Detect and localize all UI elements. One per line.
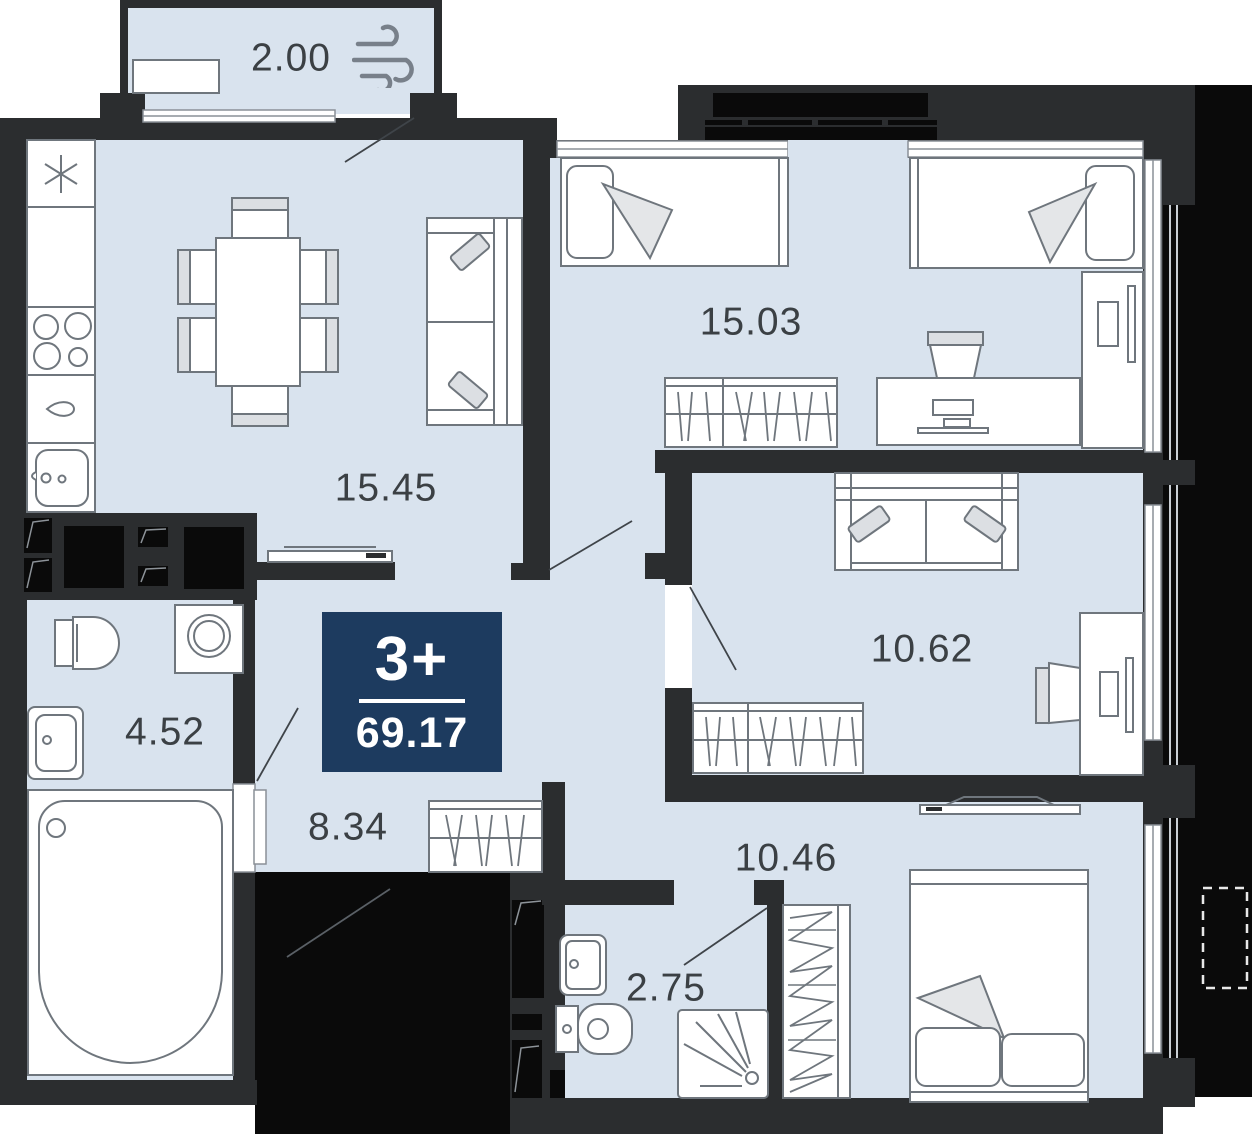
wardrobe-bedroom-middle: [693, 703, 863, 773]
sink-small: [560, 935, 606, 995]
bathroom-main-doorway: [233, 784, 255, 872]
sofa-living: [427, 218, 522, 425]
pillow: [1086, 166, 1134, 260]
bed-single-1: [561, 158, 788, 266]
shower: [678, 1010, 768, 1098]
apartment-badge: 3+ 69.17: [322, 612, 502, 772]
pillow: [567, 166, 613, 258]
room-label-balcony: 2.00: [251, 39, 331, 78]
badge-divider: [359, 699, 465, 703]
floor-plan-graphics: [0, 0, 1252, 1134]
wind-icon: [352, 24, 426, 88]
desk-item: [918, 428, 988, 433]
floor-plan: 2.00 15.45 15.03 10.62 4.52 8.34 10.46 2…: [0, 0, 1252, 1134]
dining-table: [216, 238, 300, 386]
kitchen-counter: [27, 140, 95, 512]
bathroom-main-door-leaf: [254, 790, 266, 864]
sofa-bedroom-middle: [835, 473, 1018, 570]
washing-machine: [175, 605, 243, 673]
room-label-kitchen-living: 15.45: [335, 469, 438, 508]
desk-item: [944, 419, 970, 427]
wardrobe-hallway: [429, 801, 542, 872]
kitchen-sink: [32, 450, 88, 506]
entrance-exterior-area: [255, 870, 510, 1134]
pillow: [916, 1028, 1000, 1086]
sink-main: [28, 707, 83, 779]
pc-tower: [1098, 302, 1118, 346]
room-label-bathroom-small: 2.75: [626, 969, 706, 1008]
balcony-cabinet: [133, 60, 219, 93]
monitor: [1126, 658, 1133, 732]
badge-room-count: 3+: [375, 629, 450, 691]
room-label-bedroom-top: 15.03: [700, 303, 803, 342]
room-label-bathroom-main: 4.52: [125, 713, 205, 752]
bed-single-2: [910, 158, 1143, 268]
room-label-bedroom-middle: 10.62: [871, 630, 974, 669]
pc-tower: [1100, 672, 1118, 716]
toilet-main: [55, 617, 119, 669]
room-label-bedroom-bottom: 10.46: [735, 839, 838, 878]
keyboard: [933, 400, 973, 415]
room-label-hallway: 8.34: [308, 808, 388, 847]
badge-total-area: 69.17: [356, 712, 469, 755]
closet-bedroom-bottom: [783, 905, 850, 1098]
bed-double: [910, 870, 1088, 1102]
monitor: [1128, 286, 1135, 362]
toilet-small: [556, 1004, 632, 1054]
wardrobe-bedroom-top: [665, 378, 837, 447]
bathtub: [28, 790, 233, 1075]
pillow: [1002, 1034, 1084, 1086]
